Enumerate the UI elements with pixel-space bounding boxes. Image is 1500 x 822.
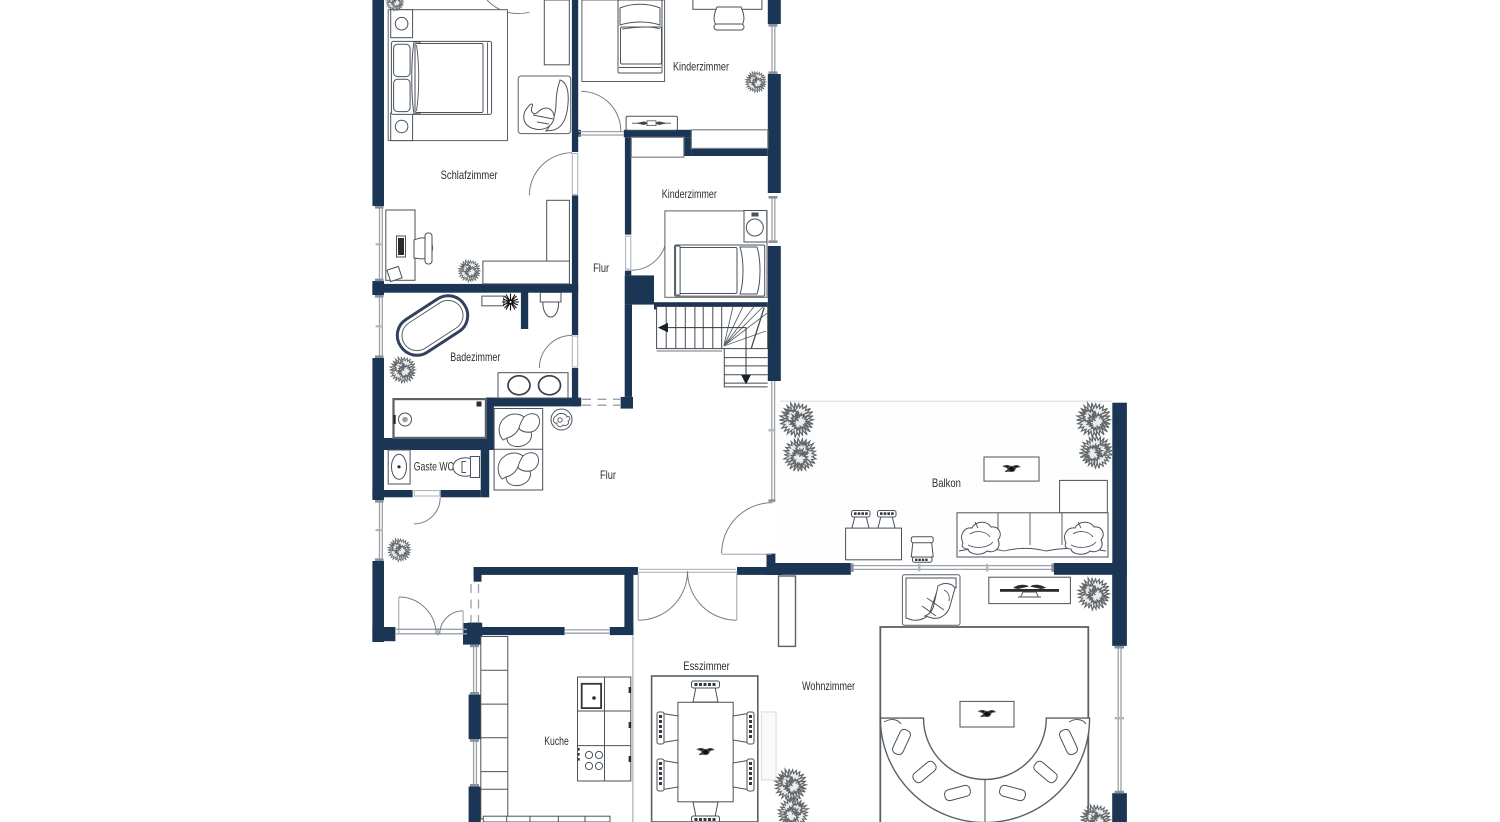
svg-text:Flur: Flur: [593, 261, 609, 275]
svg-text:Kuche: Kuche: [544, 734, 569, 748]
svg-text:Kinderzimmer: Kinderzimmer: [673, 59, 729, 73]
svg-text:Schlafzimmer: Schlafzimmer: [441, 168, 498, 182]
svg-text:Flur: Flur: [600, 468, 616, 482]
svg-text:Wohnzimmer: Wohnzimmer: [802, 679, 855, 693]
svg-text:Kinderzimmer: Kinderzimmer: [662, 187, 717, 201]
svg-text:Gaste WC: Gaste WC: [414, 459, 454, 473]
svg-text:Esszimmer: Esszimmer: [683, 659, 730, 673]
svg-text:Balkon: Balkon: [932, 476, 961, 490]
svg-text:Badezimmer: Badezimmer: [450, 350, 500, 364]
